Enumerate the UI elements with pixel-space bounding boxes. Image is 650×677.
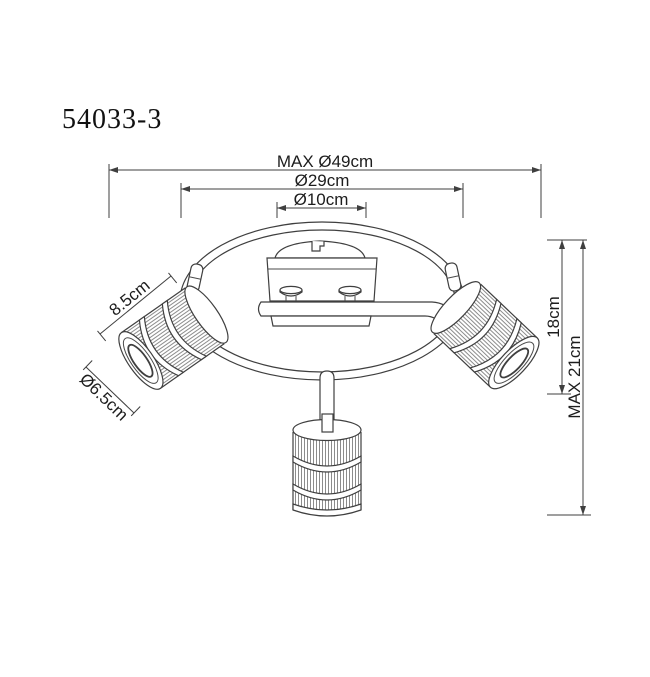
label-max-height: MAX 21cm bbox=[565, 335, 584, 418]
stem-clamp bbox=[322, 414, 333, 432]
label-shade-length: 8.5cm bbox=[106, 276, 154, 320]
technical-drawing: 54033-3 bbox=[0, 0, 650, 677]
label-body-height: 18cm bbox=[544, 296, 563, 338]
dimension-max-height: MAX 21cm bbox=[547, 240, 591, 515]
dimension-canopy-diameter: Ø10cm bbox=[277, 190, 366, 218]
diagram-page: 54033-3 bbox=[0, 0, 650, 677]
spotlight-right bbox=[424, 275, 546, 396]
label-shade-diameter: Ø6.5cm bbox=[76, 370, 132, 425]
canopy-base bbox=[271, 316, 371, 326]
label-ring-diameter: Ø29cm bbox=[295, 171, 350, 190]
dimension-shade-diameter: Ø6.5cm bbox=[76, 361, 140, 425]
model-number: 54033-3 bbox=[62, 104, 162, 135]
swivel-fork-right bbox=[444, 262, 462, 292]
spotlight-bottom bbox=[293, 420, 361, 517]
label-canopy-diameter: Ø10cm bbox=[294, 190, 349, 209]
label-overall-diameter: MAX Ø49cm bbox=[277, 152, 373, 171]
